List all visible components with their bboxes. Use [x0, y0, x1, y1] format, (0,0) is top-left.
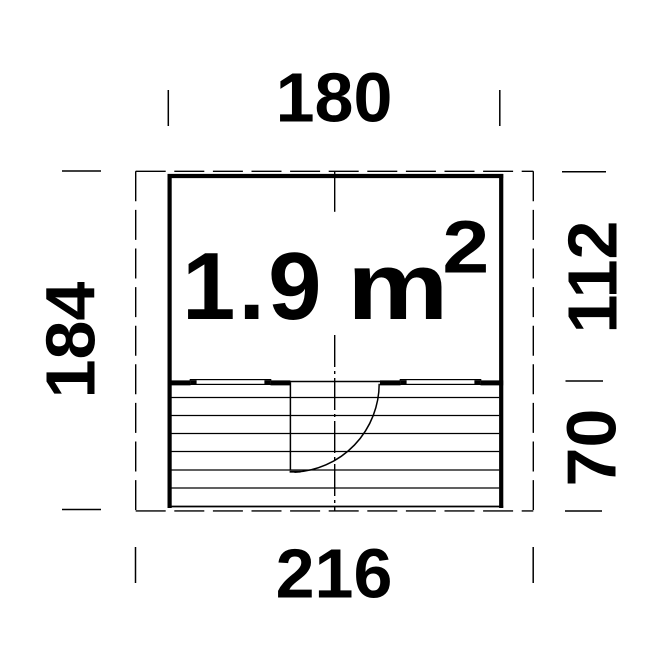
svg-text:2: 2: [442, 205, 489, 288]
svg-text:70: 70: [553, 409, 631, 487]
svg-text:m: m: [347, 233, 449, 340]
svg-text:180: 180: [276, 59, 393, 137]
svg-text:184: 184: [32, 282, 110, 399]
svg-text:112: 112: [554, 221, 632, 334]
svg-text:1.9: 1.9: [182, 233, 324, 340]
svg-text:216: 216: [276, 535, 393, 613]
